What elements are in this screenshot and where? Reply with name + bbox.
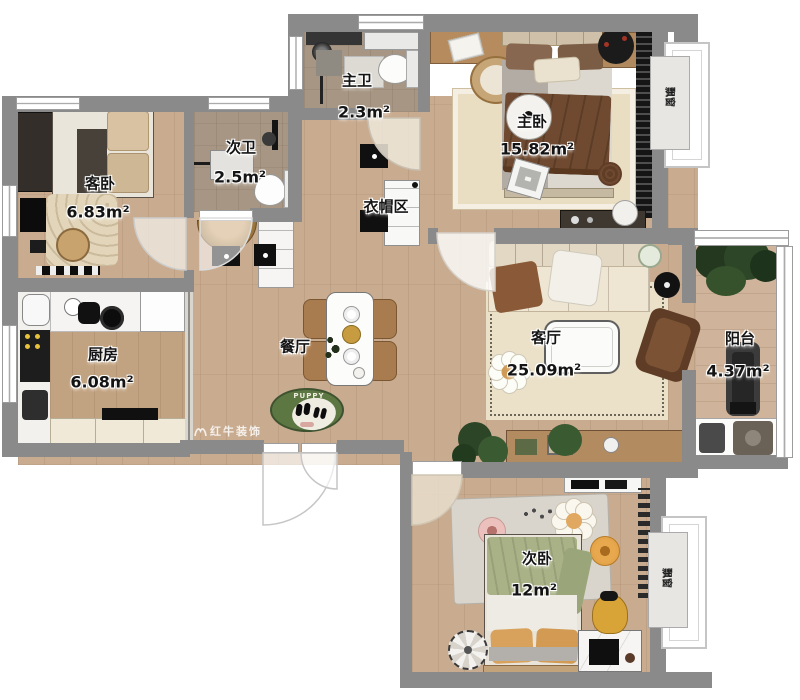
room-area-label: 2.5m² [214,168,266,187]
room-name-label: 主卧 [517,111,547,132]
room-area-label: 25.09m² [507,361,581,380]
bay-window-label: 飘窗 [661,568,676,588]
room-area-label: 4.37m² [706,362,769,381]
room-area-label: 15.82m² [500,140,574,159]
room-name-label: 阳台 [725,328,755,349]
room-name-label: 客厅 [531,327,561,348]
room-name-label: 餐厅 [280,336,310,357]
room-area-label: 12m² [511,581,557,600]
room-name-label: 次卫 [226,137,256,158]
room-name-label: 厨房 [88,344,118,365]
room-area-label: 6.08m² [70,373,133,392]
bay-window-label: 飘窗 [664,87,679,107]
watermark: 红牛装饰 [194,423,262,439]
labels-layer: 主卫2.3m²次卫2.5m²客卧6.83m²主卧15.82m²衣帽区厨房6.08… [0,0,800,700]
room-area-label: 6.83m² [66,203,129,222]
room-name-label: 次卧 [522,548,552,569]
brand-logo-icon [194,426,207,437]
watermark-text: 红牛装饰 [210,423,262,439]
room-name-label: 主卫 [342,70,372,91]
room-name-label: 客卧 [85,173,115,194]
room-area-label: 2.3m² [338,103,390,122]
room-name-label: 衣帽区 [363,196,408,217]
floor-plan: PUPPY [0,0,800,700]
